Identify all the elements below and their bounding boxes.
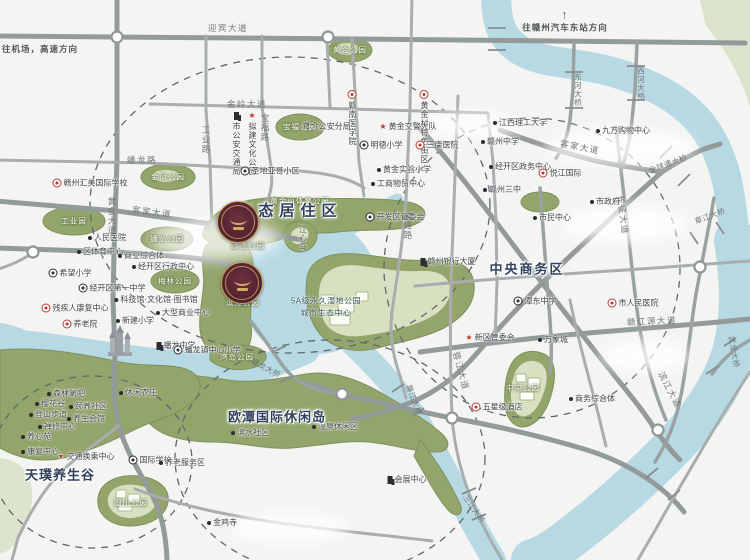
poi-label: 新区管委会 [475, 334, 515, 342]
poi-label: 滨水社区 [237, 429, 269, 437]
poi-label: 休闲农庄 [125, 389, 157, 397]
map-poi: 九方购物中心 [596, 127, 650, 135]
park-name-label: 金凤公园 [151, 172, 185, 183]
dot-marker-icon [114, 298, 118, 302]
map-poi: 商务综合体 [569, 395, 615, 403]
map-poi: 工商物贸中心 [371, 180, 425, 188]
badge-gold-emblem [234, 275, 251, 286]
dot-marker-icon [483, 188, 487, 192]
poi-label: 赣州中学 [487, 138, 519, 146]
dot-marker-icon [21, 450, 25, 454]
map-poi: 登山步道 [29, 411, 67, 419]
map-poi: ★新区管委会 [465, 334, 514, 342]
poi-label: 科技馆·文化馆·图书馆 [120, 296, 197, 304]
dot-marker-icon [371, 182, 375, 186]
road-name-label: 长征大道 [615, 194, 632, 235]
poi-label: 金鸡寺 [213, 519, 237, 527]
poi-label: 会展中心 [395, 476, 427, 484]
road-name-label: 黄金大道 [106, 197, 118, 235]
map-poi: 禅修中心 [38, 423, 76, 431]
poi-label: 人民医院 [94, 234, 126, 242]
park-name-label: 中央公园 [506, 383, 540, 394]
poi-label: 工商物贸中心 [377, 180, 425, 188]
circle-marker-icon [79, 284, 88, 293]
red-ring-marker-icon [416, 141, 425, 150]
badge-gold-emblem [230, 214, 247, 225]
road-name-label: 宝福路 [259, 114, 271, 143]
poi-label: 圣地亚哥小区 [252, 167, 300, 175]
map-poi: 滨水社区 [231, 429, 269, 437]
red-circle-marker-icon [472, 403, 481, 412]
map-poi: 明德小学 [360, 141, 403, 150]
circle-marker-icon [49, 269, 58, 278]
dot-marker-icon [21, 435, 25, 439]
road-name-label: 文峰路 [402, 212, 414, 241]
red-star-marker-icon: ★ [465, 334, 472, 342]
map-poi: 赣南医学院 [348, 90, 357, 146]
map-poi: 五星级酒店 [472, 403, 523, 412]
map-poi: 开发区管委会 [366, 213, 425, 222]
badge-gold-bar [233, 227, 244, 230]
building-marker-icon [157, 342, 162, 350]
poi-label: 开发区管委会 [377, 213, 425, 221]
direction-note: ↑往赣州汽车东站方向 [522, 9, 608, 34]
dot-marker-icon [38, 425, 42, 429]
map-poi: 市公安交通局 [232, 112, 240, 176]
park-name-label: 宝福公园 [283, 122, 317, 133]
map-poi: 养老院 [63, 320, 98, 329]
map-poi: 圣地亚哥小区 [241, 167, 300, 176]
dot-marker-icon [569, 397, 573, 401]
poi-label: 九方购物中心 [602, 127, 650, 135]
poi-label: 樱花谷 [41, 400, 65, 408]
road-name-label: 蓉江大道 [450, 350, 472, 392]
map-label-layer: 市公安交通局★拟建文化公园圣地亚哥小区赣州汇美国际学校赣南医学院黄金村特色街区★… [0, 0, 750, 560]
map-poi: 大型商业中心 [156, 309, 210, 317]
circle-marker-icon [174, 346, 183, 355]
poi-label: 江西理工大学 [499, 119, 547, 127]
poi-label: 黄金实验小学 [383, 166, 431, 174]
park-name-label: 黄金公园 [333, 45, 367, 56]
map-poi: 森林氧吧 [47, 390, 85, 398]
dot-marker-icon [69, 405, 73, 409]
dot-marker-icon [377, 168, 381, 172]
bridge-name-label: 章江大桥 [693, 205, 727, 226]
map-poi: 休闲农庄 [119, 389, 157, 397]
poi-label: 养老服务区 [165, 459, 205, 467]
red-ring-marker-icon [608, 299, 617, 308]
red-ring-marker-icon [348, 90, 357, 99]
map-poi: ★黄金交警大队 [379, 123, 436, 131]
park-name-label: 圆山公园 [114, 498, 148, 509]
map-poi: 人民医院 [88, 234, 126, 242]
dot-marker-icon [156, 311, 160, 315]
poi-label: 市人民医院 [619, 299, 659, 307]
map-poi: 黄金实验小学 [377, 166, 431, 174]
road-name-label: 蟠龙路 [127, 154, 157, 166]
map-poi: 金鸡寺 [207, 519, 237, 527]
map-poi: 悦江国际 [539, 169, 582, 178]
dot-marker-icon [207, 521, 211, 525]
poi-label: 商务综合体 [575, 395, 615, 403]
park-name-label: 湾岛公园 [220, 352, 254, 363]
map-poi: 江西理工大学 [493, 119, 547, 127]
dot-marker-icon [119, 391, 123, 395]
poi-label: 赣州三中 [489, 186, 521, 194]
up-arrow-icon: ↑ [522, 9, 608, 21]
poi-label: 养老院 [74, 320, 98, 328]
direction-note: 往机场，高速方向 [2, 43, 78, 55]
bridge-name-label: 三江大桥 [460, 493, 487, 526]
road-name-label: 金岭大道 [227, 98, 267, 110]
map-poi: 会展中心 [388, 476, 427, 484]
bridge-name-label: 蟠龙大桥 [249, 356, 282, 381]
dot-marker-icon [47, 392, 51, 396]
map-poi: 养心苑 [21, 433, 51, 441]
map-poi: 养老服务区 [159, 459, 205, 467]
map-poi: 三康医院 [416, 141, 459, 150]
zone-title-label: 欧潭国际休闲岛 [228, 407, 326, 426]
poi-label: 颐养社区 [75, 403, 107, 411]
circle-marker-icon [514, 297, 523, 306]
badge-gold-bar [237, 288, 248, 291]
dot-marker-icon [159, 461, 163, 465]
poi-label: 黄金村特色街区 [420, 101, 428, 164]
map-poi: 市人民医院 [608, 299, 659, 308]
circle-marker-icon [129, 456, 138, 465]
poi-label: 悦江国际 [550, 169, 582, 177]
annotation-label: 城市生态中心 [301, 308, 352, 319]
project-logo-badge [217, 201, 259, 243]
poi-label: 养心苑 [27, 433, 51, 441]
poi-label: 市民中心 [539, 214, 571, 222]
project-logo-badge [221, 262, 263, 304]
map-poi: 经开区第一中学 [79, 284, 146, 293]
building-marker-icon [234, 112, 239, 120]
road-name-label: 客家大道 [559, 137, 601, 156]
park-name-label: 梅林公园 [158, 276, 192, 287]
bridge-name-label: 全球通大桥 [647, 152, 688, 176]
poi-label: 禅修中心 [44, 423, 76, 431]
road-name-label: 迎宾大道 [208, 22, 248, 34]
circle-marker-icon [360, 141, 369, 150]
map-poi: 潭东中学 [514, 297, 557, 306]
poi-label: 经开区第一中学 [90, 284, 146, 292]
map-poi: 区体育中心 [77, 248, 123, 256]
map-poi: 经开区行政中心 [132, 263, 194, 271]
annotation-label: 5A级永久湿地公园 [291, 296, 361, 307]
poi-label: 登山步道 [35, 411, 67, 419]
map-poi: 希望小学 [49, 269, 92, 278]
red-ring-marker-icon [53, 179, 62, 188]
direction-text: 往赣州汽车东站方向 [522, 23, 608, 33]
dot-marker-icon [590, 200, 594, 204]
map-poi: 赣州汇美国际学校 [53, 179, 128, 188]
dot-marker-icon [29, 413, 33, 417]
dot-marker-icon [67, 417, 71, 421]
dot-marker-icon [231, 431, 235, 435]
dot-marker-icon [132, 265, 136, 269]
red-ring-marker-icon [420, 90, 429, 99]
bridge-name-label: 蓉江大桥 [403, 383, 425, 417]
road-name-label: 客家大道 [131, 204, 172, 221]
direction-text: 往机场，高速方向 [2, 44, 78, 54]
park-name-label: 蟠龙公园 [150, 234, 184, 245]
poi-label: 三康医院 [427, 141, 459, 149]
dot-marker-icon [312, 425, 316, 429]
poi-label: 交通换乘中心 [66, 453, 114, 461]
poi-label: 区体育中心 [83, 248, 123, 256]
map-poi: 残疾人康复中心 [42, 304, 109, 313]
dot-marker-icon [493, 121, 497, 125]
dot-marker-icon [533, 216, 537, 220]
dot-marker-icon [77, 250, 81, 254]
bridge-name-label: 东河大桥 [573, 73, 584, 107]
poi-label: 森林氧吧 [53, 390, 85, 398]
red-circle-marker-icon [63, 320, 72, 329]
dot-marker-icon [88, 236, 92, 240]
poi-label: 明德小学 [371, 141, 403, 149]
dot-marker-icon [35, 402, 39, 406]
poi-label: 康复中心 [27, 448, 59, 456]
red-circle-marker-icon [42, 304, 51, 313]
poi-label: 潭东中学 [525, 297, 557, 305]
red-star-marker-icon: ★ [379, 123, 386, 131]
map-poi: 康复中心 [21, 448, 59, 456]
poi-label: 黄金交警大队 [389, 123, 437, 131]
zone-title-label: 天璞养生谷 [25, 465, 95, 484]
poi-label: 残疾人康复中心 [53, 304, 109, 312]
road-name-label: 滨江大道 [655, 370, 684, 411]
red-star-marker-icon: ★ [248, 112, 255, 120]
poi-label: 经开区行政中心 [138, 263, 194, 271]
poi-label: 希望小学 [60, 269, 92, 277]
map-poi: ▼交通换乘中心 [58, 453, 115, 461]
map-poi: 商业综合体 [118, 252, 164, 260]
red-triangle-marker-icon: ▼ [58, 454, 65, 461]
dot-marker-icon [116, 319, 120, 323]
dot-marker-icon [489, 165, 493, 169]
poi-label: 市公安交通局 [232, 122, 240, 176]
annotation-label: 江心岛 [298, 225, 309, 251]
map-poi: 赣州银行大厦 [421, 258, 476, 266]
poi-label: 商业综合体 [124, 252, 164, 260]
dot-marker-icon [538, 338, 542, 342]
zone-title-label: 中央商务区 [489, 259, 564, 278]
map-poi: 市民中心 [533, 214, 571, 222]
poi-label: 大型商业中心 [162, 309, 210, 317]
dot-marker-icon [596, 129, 600, 133]
poi-label: 赣州银行大厦 [428, 258, 476, 266]
red-ring-marker-icon [539, 169, 548, 178]
circle-marker-icon [366, 213, 375, 222]
bridge-name-label: 西河大桥 [636, 67, 647, 101]
poi-label: 五星级酒店 [483, 403, 523, 411]
road-name-label: 赣江源大道 [627, 314, 678, 329]
map-poi: 万象城 [538, 336, 568, 344]
poi-label: 养生会馆 [73, 415, 105, 423]
building-marker-icon [421, 258, 426, 266]
road-name-label: 工业路 [200, 126, 212, 155]
building-marker-icon [388, 476, 393, 484]
poi-label: 赣州汇美国际学校 [64, 179, 128, 187]
map-poi: 科技馆·文化馆·图书馆 [114, 296, 197, 304]
map-poi: 赣州中学 [481, 138, 519, 146]
map-poi: 新建小学 [116, 317, 154, 325]
poi-label: 新建小学 [122, 317, 154, 325]
dot-marker-icon [481, 140, 485, 144]
circle-marker-icon [241, 167, 250, 176]
map-poi: 赣州三中 [483, 186, 521, 194]
park-name-label: 工业园 [61, 216, 87, 227]
bridge-name-label: 武龙大桥 [726, 335, 742, 368]
map-poi: 颐养社区 [69, 403, 107, 411]
dot-marker-icon [118, 254, 122, 258]
poi-label: 万象城 [544, 336, 568, 344]
map-poi: 樱花谷 [35, 400, 65, 408]
city-planning-map: 市公安交通局★拟建文化公园圣地亚哥小区赣州汇美国际学校赣南医学院黄金村特色街区★… [0, 0, 750, 560]
